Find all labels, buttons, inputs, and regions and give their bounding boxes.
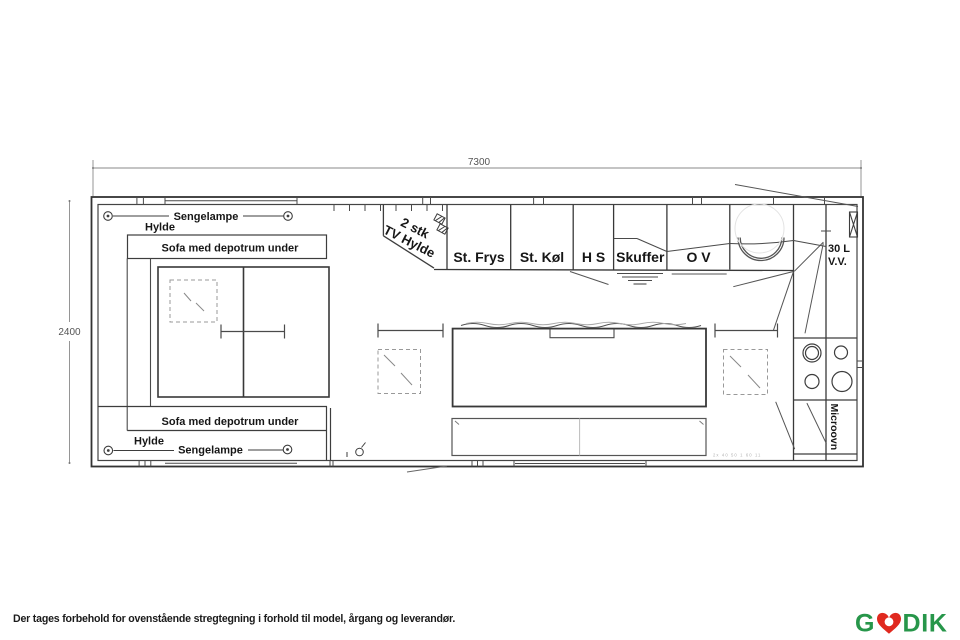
svg-text:Hylde: Hylde	[145, 222, 175, 234]
svg-text:Sengelampe: Sengelampe	[178, 445, 243, 457]
svg-text:Der tages forbehold for ovenst: Der tages forbehold for ovenstående stre…	[13, 613, 455, 625]
svg-text:Sofa med depotrum under: Sofa med depotrum under	[162, 243, 300, 255]
svg-text:Sofa med depotrum under: Sofa med depotrum under	[162, 416, 300, 428]
svg-text:O V: O V	[686, 249, 711, 265]
svg-text:G: G	[855, 610, 874, 638]
svg-text:Hylde: Hylde	[134, 436, 164, 448]
svg-text:St. Køl: St. Køl	[520, 249, 564, 265]
svg-text:H S: H S	[582, 249, 605, 265]
svg-text:30 L: 30 L	[828, 243, 850, 255]
svg-text:2x 40 50 1 60 11: 2x 40 50 1 60 11	[713, 453, 762, 458]
svg-text:Skuffer: Skuffer	[616, 249, 665, 265]
svg-text:7300: 7300	[468, 157, 491, 168]
svg-text:2400: 2400	[58, 327, 81, 338]
svg-text:V.V.: V.V.	[828, 256, 847, 268]
svg-text:DIK: DIK	[903, 610, 948, 638]
svg-text:Sengelampe: Sengelampe	[174, 211, 239, 223]
svg-text:St. Frys: St. Frys	[453, 249, 505, 265]
svg-text:Microovn: Microovn	[828, 404, 840, 451]
